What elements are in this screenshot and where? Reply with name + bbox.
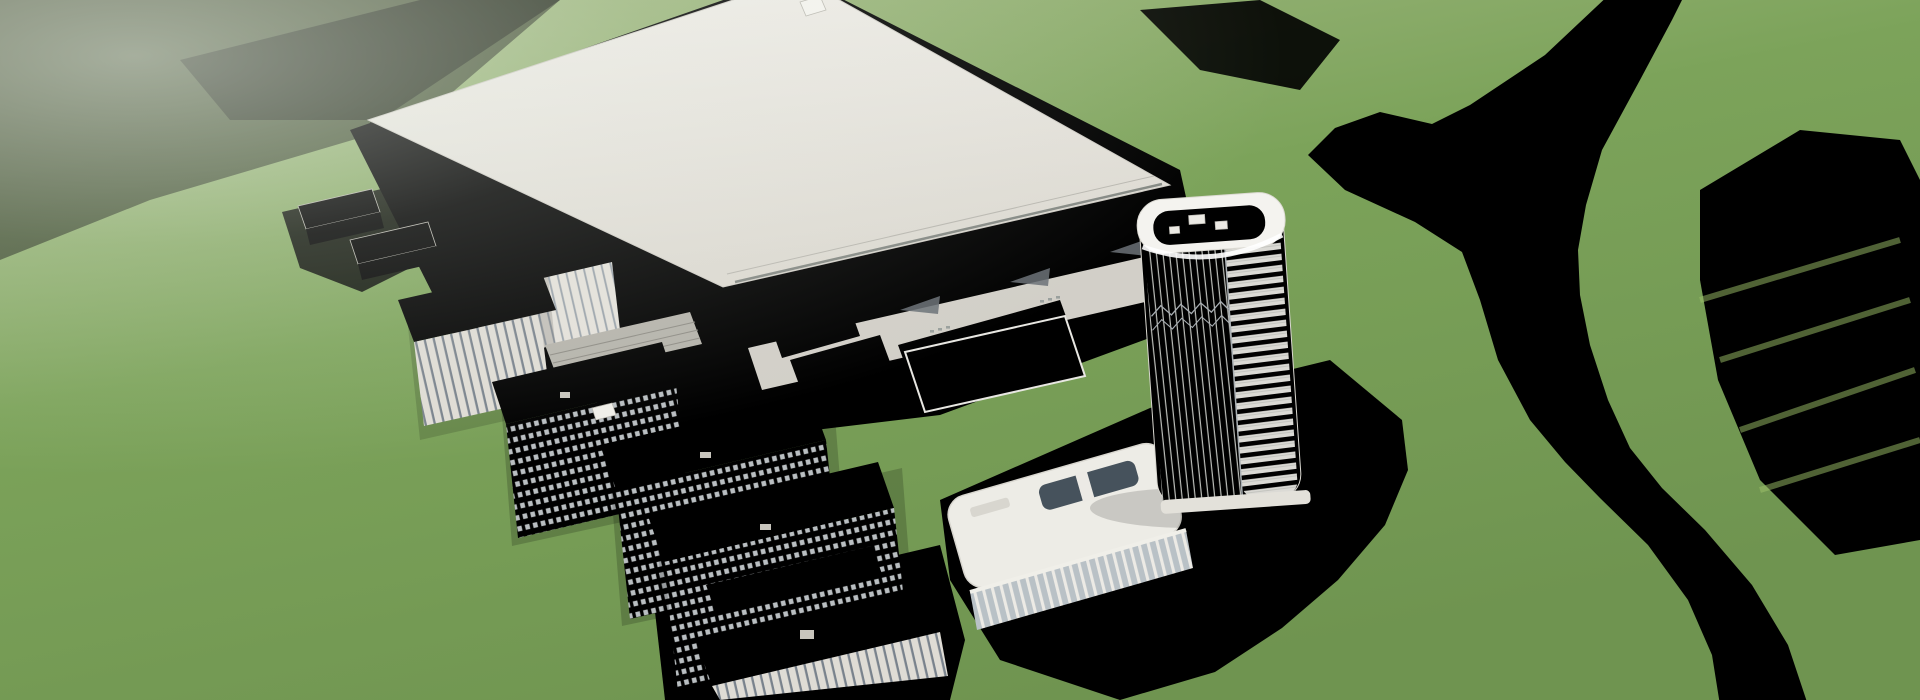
atmospheric-haze bbox=[0, 0, 1920, 700]
haze-overlay bbox=[0, 0, 1920, 700]
aerial-campus-rendering bbox=[0, 0, 1920, 700]
scene-svg bbox=[0, 0, 1920, 700]
